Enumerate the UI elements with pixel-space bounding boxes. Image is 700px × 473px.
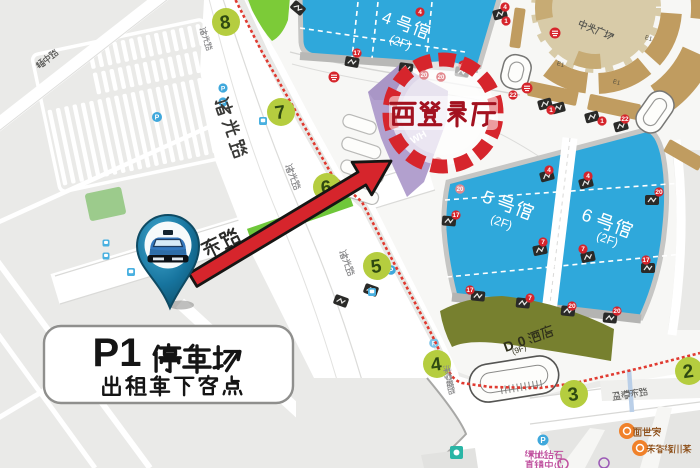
- svg-text:4: 4: [547, 167, 551, 174]
- svg-text:4: 4: [503, 4, 507, 11]
- svg-text:P1: P1: [93, 331, 142, 375]
- svg-text:7: 7: [581, 246, 585, 253]
- svg-text:17: 17: [452, 212, 460, 219]
- svg-text:22: 22: [509, 92, 517, 99]
- svg-text:20: 20: [457, 187, 464, 193]
- svg-text:4: 4: [586, 173, 590, 180]
- svg-text:7: 7: [528, 295, 532, 302]
- svg-text:4: 4: [418, 9, 422, 16]
- svg-text:20: 20: [568, 303, 576, 310]
- svg-text:22: 22: [621, 116, 629, 123]
- svg-text:P: P: [155, 115, 160, 122]
- svg-text:20: 20: [438, 75, 445, 81]
- svg-text:1: 1: [549, 107, 553, 114]
- svg-text:1: 1: [504, 18, 508, 25]
- svg-text:17: 17: [466, 287, 474, 294]
- svg-text:P: P: [221, 85, 226, 92]
- svg-text:17: 17: [642, 257, 650, 264]
- svg-text:20: 20: [613, 308, 621, 315]
- svg-text:20: 20: [421, 73, 428, 79]
- svg-text:20: 20: [655, 189, 663, 196]
- svg-text:P: P: [540, 436, 546, 445]
- svg-text:1: 1: [600, 118, 604, 125]
- svg-text:17: 17: [353, 50, 361, 57]
- svg-text:7: 7: [541, 239, 545, 246]
